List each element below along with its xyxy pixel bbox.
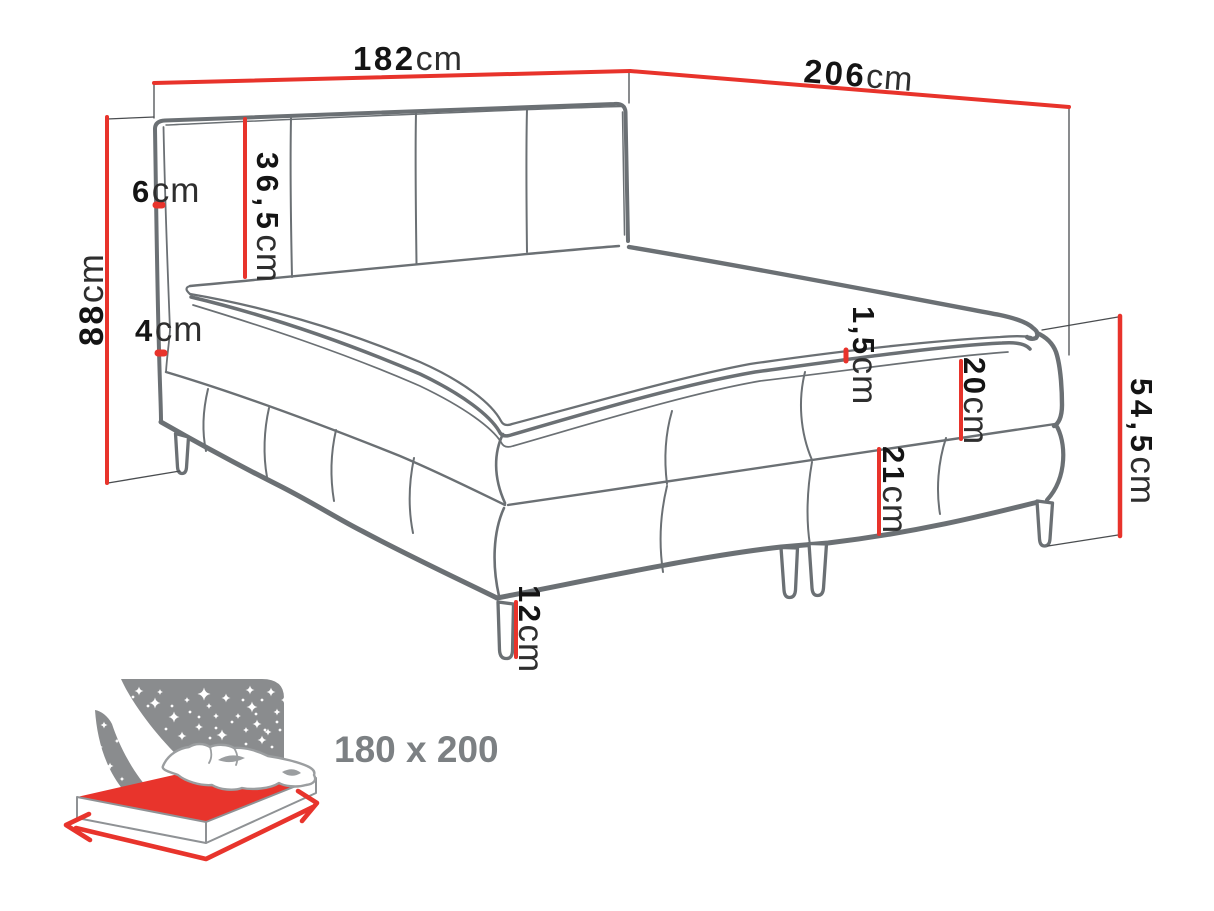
svg-text:54,5cm: 54,5cm <box>1123 378 1162 505</box>
svg-text:36,5cm: 36,5cm <box>249 152 288 283</box>
svg-text:88cm: 88cm <box>70 253 111 346</box>
svg-text:21cm: 21cm <box>875 446 914 534</box>
svg-text:4cm: 4cm <box>135 310 203 349</box>
svg-text:20cm: 20cm <box>956 357 995 445</box>
svg-text:206cm: 206cm <box>802 52 915 99</box>
svg-text:180 x 200: 180 x 200 <box>334 729 499 770</box>
svg-text:1,5cm: 1,5cm <box>845 306 884 405</box>
svg-text:6cm: 6cm <box>132 171 200 210</box>
svg-text:12cm: 12cm <box>511 585 550 673</box>
svg-text:182cm: 182cm <box>353 40 463 78</box>
